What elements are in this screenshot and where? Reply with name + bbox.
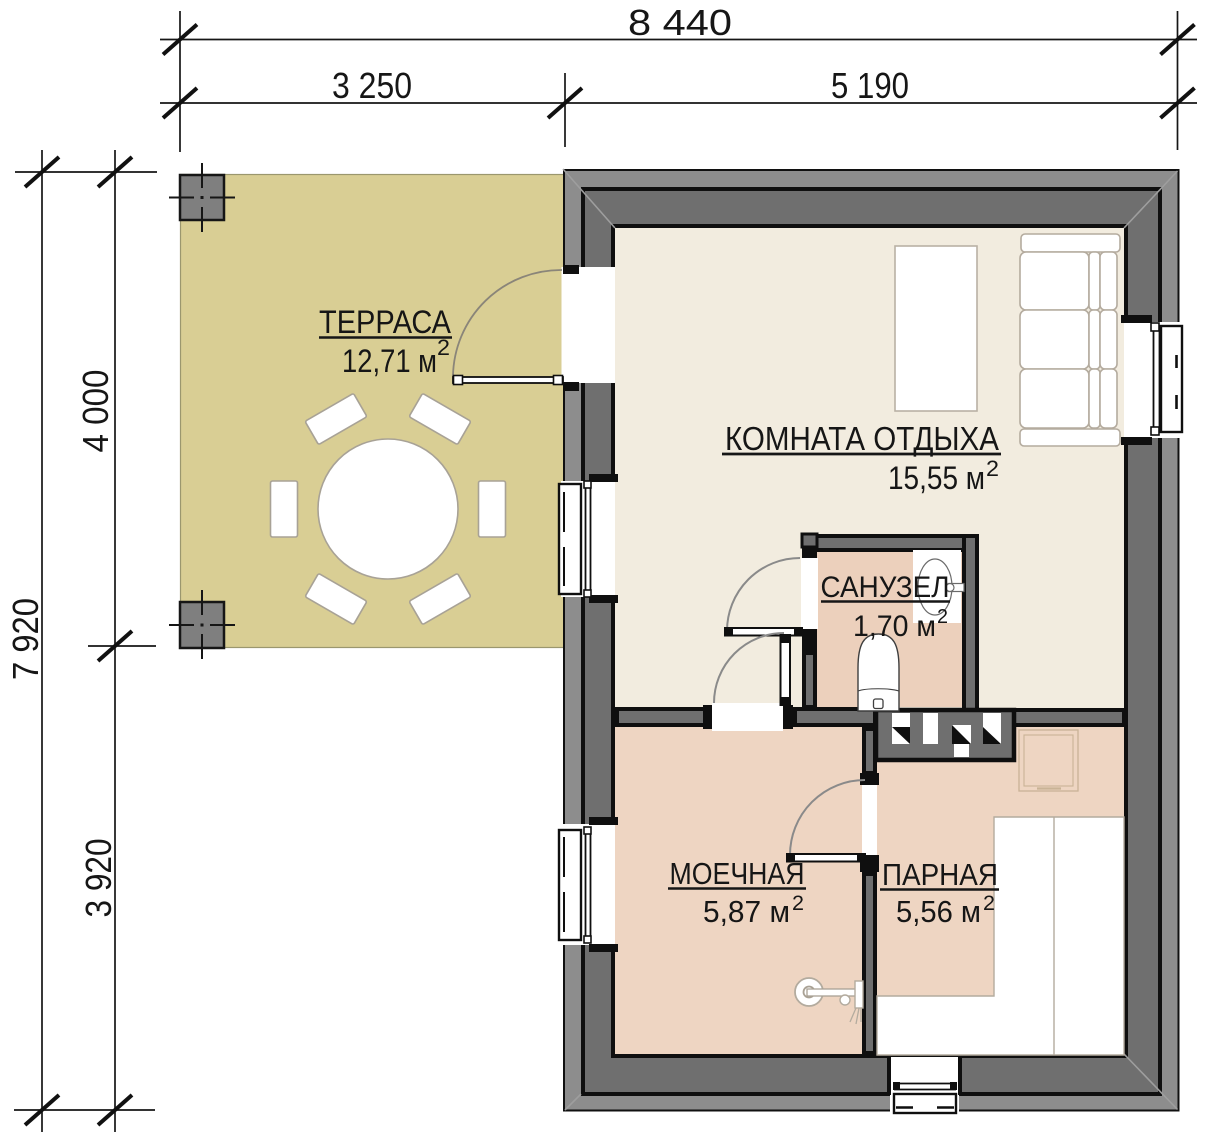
svg-text:ТЕРРАСА: ТЕРРАСА: [319, 304, 452, 340]
svg-text:5 190: 5 190: [831, 65, 909, 106]
svg-text:2: 2: [986, 456, 999, 481]
svg-text:12,71 м: 12,71 м: [342, 343, 437, 379]
svg-text:4 000: 4 000: [75, 370, 116, 453]
svg-text:3 250: 3 250: [332, 65, 412, 106]
svg-text:ПАРНАЯ: ПАРНАЯ: [882, 857, 998, 892]
svg-text:15,55 м: 15,55 м: [888, 460, 985, 496]
svg-text:3 920: 3 920: [78, 839, 119, 918]
svg-text:2: 2: [983, 892, 995, 915]
svg-text:7 920: 7 920: [5, 598, 46, 680]
svg-text:5,87 м: 5,87 м: [703, 894, 790, 929]
svg-text:2: 2: [937, 606, 948, 628]
svg-text:2: 2: [792, 892, 804, 915]
svg-text:5,56 м: 5,56 м: [896, 894, 981, 929]
svg-text:САНУЗЕЛ: САНУЗЕЛ: [821, 571, 950, 604]
svg-text:1,70 м: 1,70 м: [853, 610, 936, 643]
svg-text:МОЕЧНАЯ: МОЕЧНАЯ: [670, 856, 805, 891]
svg-text:8 440: 8 440: [628, 2, 732, 43]
svg-text:КОМНАТА ОТДЫХА: КОМНАТА ОТДЫХА: [725, 420, 999, 457]
svg-text:2: 2: [437, 335, 450, 360]
